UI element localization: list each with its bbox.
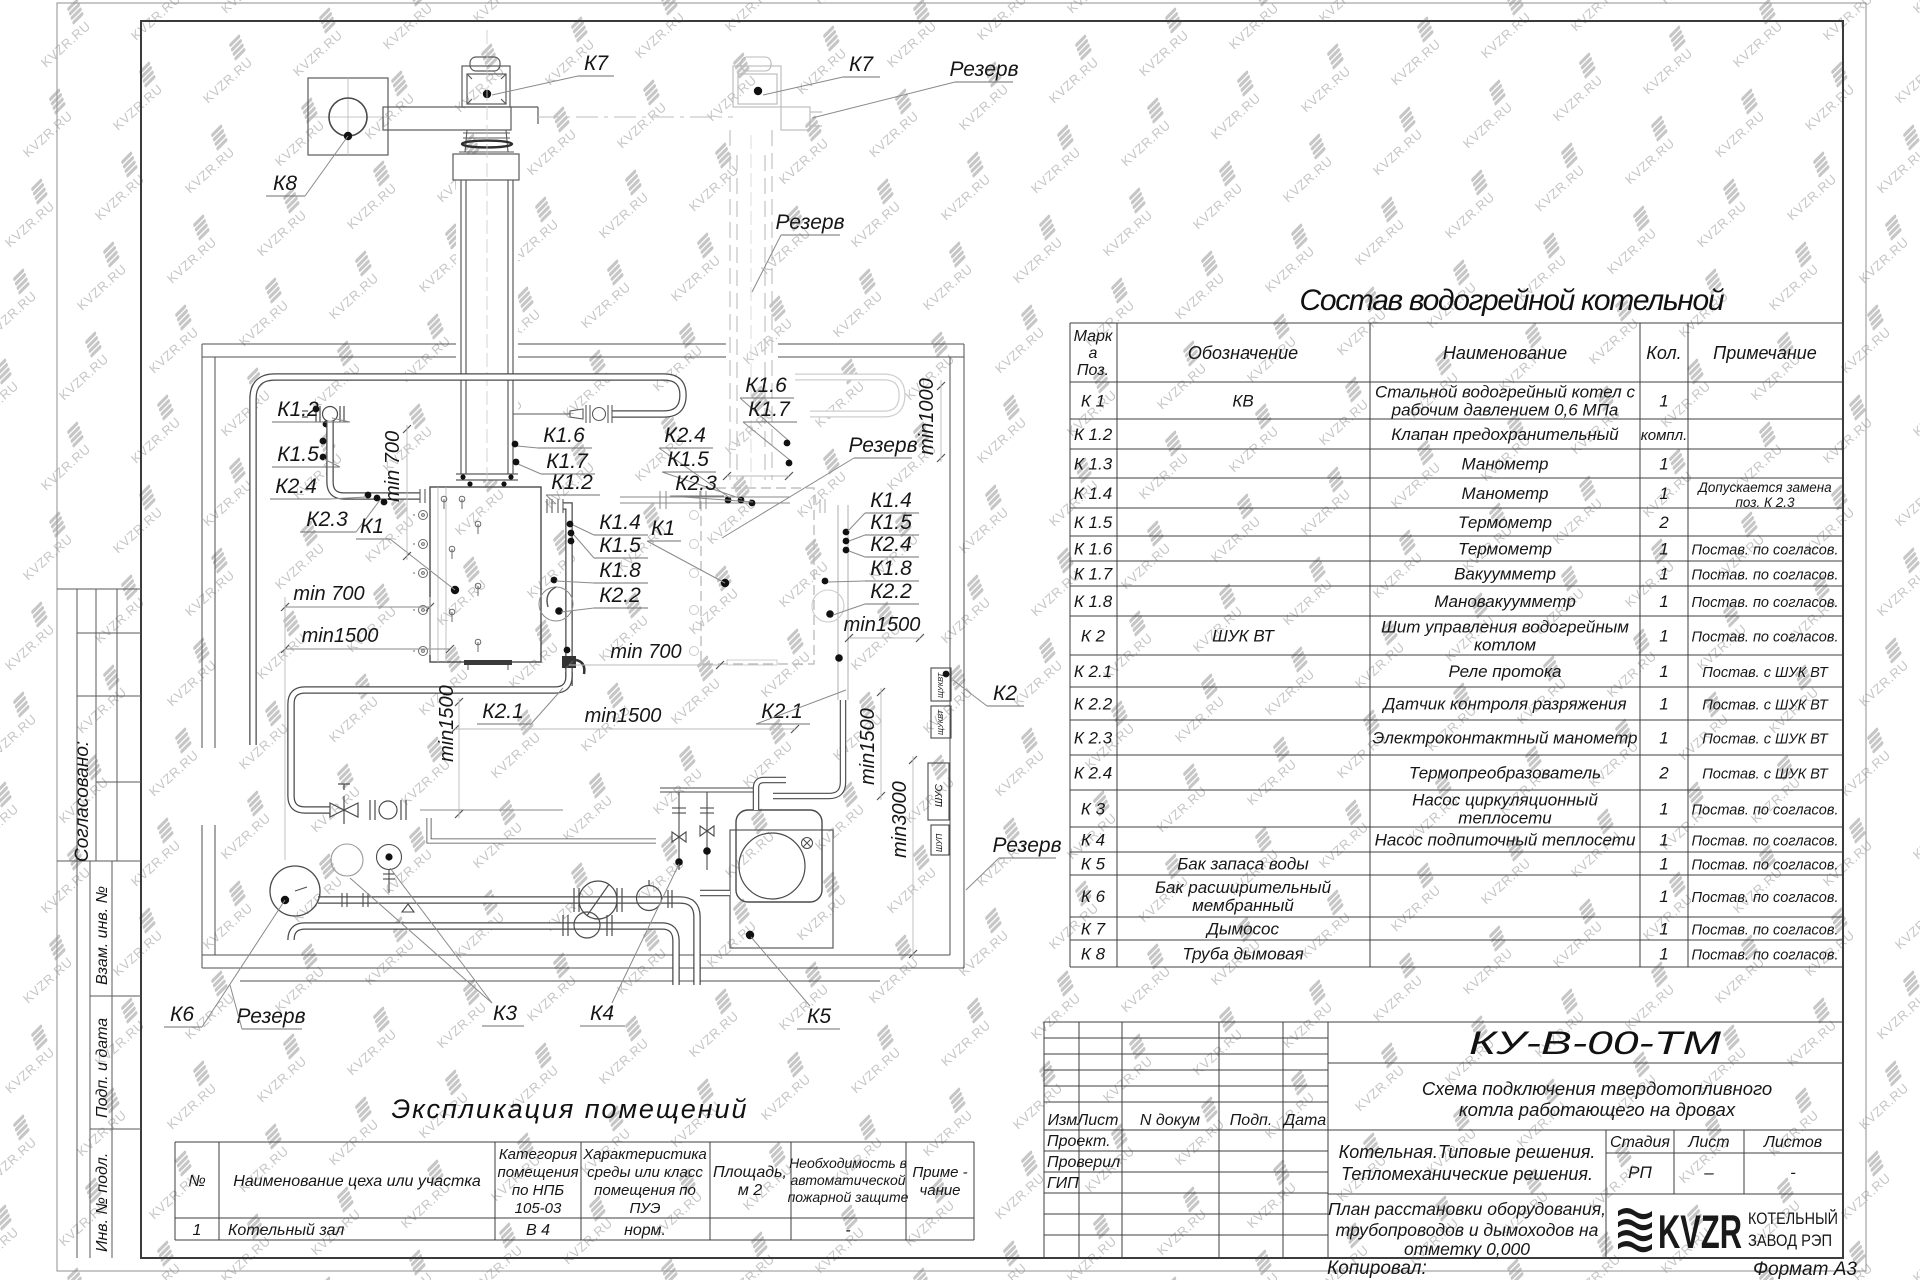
svg-text:Дата: Дата bbox=[1282, 1112, 1326, 1129]
svg-text:Резерв: Резерв bbox=[775, 211, 844, 234]
svg-text:N докум: N докум bbox=[1140, 1112, 1200, 1129]
svg-text:Постав. с ШУК ВТ: Постав. с ШУК ВТ bbox=[1702, 767, 1829, 783]
svg-text:Обозначение: Обозначение bbox=[1188, 343, 1298, 363]
svg-text:Наименование: Наименование bbox=[1443, 343, 1567, 363]
svg-text:Вакуумметр: Вакуумметр bbox=[1454, 565, 1556, 584]
svg-text:Кол.: Кол. bbox=[1646, 343, 1681, 363]
svg-text:помещения: помещения bbox=[498, 1164, 579, 1181]
svg-text:ПУЭ: ПУЭ bbox=[629, 1200, 660, 1217]
svg-text:План расстановки оборудования,: План расстановки оборудования, bbox=[1328, 1199, 1606, 1219]
svg-text:1: 1 bbox=[1659, 887, 1668, 906]
svg-text:ШУС: ШУС bbox=[934, 783, 945, 807]
svg-text:К2.3: К2.3 bbox=[306, 508, 348, 531]
svg-text:Допускается замена: Допускается замена bbox=[1696, 480, 1832, 495]
svg-text:К1.5: К1.5 bbox=[599, 534, 641, 557]
svg-text:К5: К5 bbox=[807, 1005, 831, 1028]
svg-text:ШУП: ШУП bbox=[935, 834, 944, 852]
svg-text:Приме -: Приме - bbox=[912, 1164, 967, 1181]
svg-text:теплосети: теплосети bbox=[1458, 809, 1552, 828]
svg-text:1: 1 bbox=[1659, 800, 1668, 819]
svg-text:min1500: min1500 bbox=[857, 708, 879, 785]
svg-text:К2.2: К2.2 bbox=[599, 584, 641, 607]
svg-text:ГИП: ГИП bbox=[1047, 1175, 1079, 1192]
svg-text:К 2.3: К 2.3 bbox=[1074, 729, 1113, 748]
svg-text:а: а bbox=[1089, 345, 1098, 362]
svg-text:К 2.4: К 2.4 bbox=[1074, 764, 1112, 783]
svg-text:К1.5: К1.5 bbox=[870, 511, 912, 534]
svg-text:–: – bbox=[1703, 1163, 1714, 1182]
svg-text:Бак запаса воды: Бак запаса воды bbox=[1177, 855, 1309, 874]
svg-text:К 2.1: К 2.1 bbox=[1074, 662, 1112, 681]
svg-text:Взам. инв. №: Взам. инв. № bbox=[94, 886, 111, 985]
svg-text:м 2: м 2 bbox=[738, 1182, 762, 1199]
svg-text:К1.4: К1.4 bbox=[599, 511, 641, 534]
svg-text:Постав. по согласов.: Постав. по согласов. bbox=[1692, 595, 1839, 611]
svg-text:Площадь,: Площадь, bbox=[713, 1164, 787, 1181]
svg-text:1: 1 bbox=[1659, 831, 1668, 850]
svg-text:К2.1: К2.1 bbox=[482, 700, 524, 723]
svg-text:1: 1 bbox=[1659, 455, 1668, 474]
svg-text:Термометр: Термометр bbox=[1458, 540, 1552, 559]
svg-text:помещения по: помещения по bbox=[594, 1182, 696, 1199]
svg-text:Характеристика: Характеристика bbox=[582, 1146, 707, 1163]
svg-text:1: 1 bbox=[1659, 945, 1668, 964]
svg-text:Инв. № подл.: Инв. № подл. bbox=[94, 1153, 111, 1252]
svg-text:-: - bbox=[845, 1222, 850, 1239]
svg-text:Постав. по согласов.: Постав. по согласов. bbox=[1692, 890, 1839, 906]
svg-text:К1.4: К1.4 bbox=[870, 489, 912, 512]
svg-text:Марк: Марк bbox=[1074, 328, 1114, 345]
svg-text:Котельный зал: Котельный зал bbox=[228, 1222, 344, 1239]
svg-text:К 1.8: К 1.8 bbox=[1074, 592, 1113, 611]
svg-text:Резерв: Резерв bbox=[949, 58, 1018, 81]
svg-text:ИзмЛист: ИзмЛист bbox=[1048, 1112, 1119, 1129]
svg-text:Тепломеханические решения.: Тепломеханические решения. bbox=[1341, 1164, 1593, 1184]
svg-text:Датчик контроля разряжения: Датчик контроля разряжения bbox=[1381, 695, 1626, 714]
svg-text:min1500: min1500 bbox=[844, 614, 921, 636]
svg-text:чание: чание bbox=[919, 1182, 960, 1199]
svg-text:К2.4: К2.4 bbox=[275, 475, 317, 498]
svg-text:котлом: котлом bbox=[1474, 636, 1536, 655]
svg-text:РП: РП bbox=[1628, 1163, 1652, 1182]
svg-text:К 3: К 3 bbox=[1081, 800, 1106, 819]
svg-text:КОТЕЛЬНЫЙ: КОТЕЛЬНЫЙ bbox=[1748, 1209, 1838, 1228]
svg-text:Экспликация помещений: Экспликация помещений bbox=[392, 1094, 747, 1124]
svg-text:Постав. по согласов.: Постав. по согласов. bbox=[1692, 543, 1839, 559]
svg-text:К1.5: К1.5 bbox=[277, 443, 319, 466]
svg-text:Лист: Лист bbox=[1687, 1134, 1729, 1151]
svg-text:К2.4: К2.4 bbox=[664, 424, 706, 447]
svg-text:К7: К7 bbox=[584, 52, 609, 75]
svg-text:Постав. по согласов.: Постав. по согласов. bbox=[1692, 858, 1839, 874]
svg-text:Термопреобразователь: Термопреобразователь bbox=[1409, 764, 1601, 783]
svg-text:KVZR: KVZR bbox=[1658, 1205, 1742, 1258]
svg-text:Подп. и дата: Подп. и дата bbox=[94, 1018, 111, 1118]
svg-text:Подп.: Подп. bbox=[1230, 1112, 1273, 1129]
svg-text:Согласовано:: Согласовано: bbox=[72, 741, 93, 862]
svg-text:Примечание: Примечание bbox=[1713, 343, 1817, 363]
svg-text:Состав водогрейной котельной: Состав водогрейной котельной bbox=[1300, 284, 1725, 317]
svg-text:Резерв: Резерв bbox=[848, 434, 917, 457]
svg-text:Наименование цеха или участка: Наименование цеха или участка bbox=[233, 1173, 481, 1190]
svg-text:К6: К6 bbox=[170, 1003, 194, 1026]
svg-text:К 1.5: К 1.5 bbox=[1074, 513, 1113, 532]
svg-text:ЩУКВТ: ЩУКВТ bbox=[936, 708, 945, 735]
svg-text:105-03: 105-03 bbox=[515, 1200, 562, 1217]
svg-text:К 1.4: К 1.4 bbox=[1074, 484, 1112, 503]
svg-text:Насос подпиточный теплосети: Насос подпиточный теплосети bbox=[1375, 831, 1636, 850]
svg-text:1: 1 bbox=[1659, 695, 1668, 714]
svg-text:К 4: К 4 bbox=[1081, 831, 1105, 850]
svg-text:Стадия: Стадия bbox=[1610, 1134, 1670, 1151]
svg-text:Мановакуумметр: Мановакуумметр bbox=[1434, 592, 1576, 611]
svg-text:К2: К2 bbox=[993, 682, 1017, 705]
svg-text:К1.7: К1.7 bbox=[546, 450, 589, 473]
svg-text:Электроконтактный манометр: Электроконтактный манометр bbox=[1373, 729, 1638, 748]
svg-text:К4: К4 bbox=[590, 1002, 614, 1025]
svg-text:автоматической: автоматической bbox=[790, 1172, 905, 1188]
svg-text:Листов: Листов bbox=[1763, 1134, 1822, 1151]
svg-text:К 1.7: К 1.7 bbox=[1074, 565, 1113, 584]
svg-text:Формат А3: Формат А3 bbox=[1753, 1259, 1857, 1280]
svg-text:К 2.2: К 2.2 bbox=[1074, 695, 1113, 714]
svg-text:Термометр: Термометр bbox=[1458, 513, 1552, 532]
svg-text:1: 1 bbox=[1659, 565, 1668, 584]
svg-text:среды или класс: среды или класс bbox=[587, 1164, 703, 1181]
svg-text:Постав. с ШУК ВТ: Постав. с ШУК ВТ bbox=[1702, 665, 1829, 681]
svg-text:Насос циркуляционный: Насос циркуляционный bbox=[1412, 791, 1598, 810]
svg-text:К8: К8 bbox=[273, 172, 297, 195]
svg-text:поз. К 2.3: поз. К 2.3 bbox=[1735, 495, 1795, 510]
svg-text:min 700: min 700 bbox=[610, 641, 681, 663]
svg-text:Стальной водогрейный котел с: Стальной водогрейный котел с bbox=[1375, 383, 1635, 402]
svg-text:1: 1 bbox=[1659, 592, 1668, 611]
svg-text:пожарной защите: пожарной защите bbox=[788, 1189, 909, 1205]
svg-text:Шит управления водогрейным: Шит управления водогрейным bbox=[1381, 618, 1629, 637]
svg-text:К1.7: К1.7 bbox=[748, 398, 791, 421]
svg-text:Манометр: Манометр bbox=[1462, 484, 1549, 503]
svg-text:Категория: Категория bbox=[499, 1146, 577, 1163]
svg-text:ШУК ВТ: ШУК ВТ bbox=[1212, 627, 1275, 646]
svg-text:К 1.6: К 1.6 bbox=[1074, 540, 1113, 559]
svg-text:К 7: К 7 bbox=[1081, 920, 1106, 939]
svg-text:№: № bbox=[188, 1173, 205, 1190]
svg-text:К1.8: К1.8 bbox=[599, 559, 641, 582]
svg-text:К 1.3: К 1.3 bbox=[1074, 455, 1113, 474]
svg-text:1: 1 bbox=[1659, 627, 1668, 646]
svg-text:рабочим давлением 0,6 МПа: рабочим давлением 0,6 МПа bbox=[1391, 401, 1619, 420]
svg-text:Постав. по согласов.: Постав. по согласов. bbox=[1692, 630, 1839, 646]
svg-text:min1000: min1000 bbox=[916, 378, 938, 455]
svg-text:1: 1 bbox=[1659, 484, 1668, 503]
svg-text:К1.6: К1.6 bbox=[543, 424, 585, 447]
svg-text:Реле протока: Реле протока bbox=[1449, 662, 1562, 681]
svg-text:К1.5: К1.5 bbox=[667, 448, 709, 471]
svg-text:Копировал:: Копировал: bbox=[1327, 1258, 1427, 1279]
svg-text:КВ: КВ bbox=[1232, 392, 1253, 411]
svg-text:2: 2 bbox=[1658, 513, 1669, 532]
svg-text:К2.4: К2.4 bbox=[870, 533, 912, 556]
svg-text:К1: К1 bbox=[651, 517, 675, 540]
svg-text:отметку 0,000: отметку 0,000 bbox=[1404, 1239, 1530, 1259]
svg-text:Постав. по согласов.: Постав. по согласов. bbox=[1692, 923, 1839, 939]
svg-text:min 700: min 700 bbox=[293, 583, 364, 605]
svg-text:Резерв: Резерв bbox=[992, 834, 1061, 857]
svg-text:К 1.2: К 1.2 bbox=[1074, 425, 1113, 444]
svg-text:К1.8: К1.8 bbox=[870, 557, 912, 580]
svg-text:Постав. по согласов.: Постав. по согласов. bbox=[1692, 803, 1839, 819]
svg-text:В 4: В 4 bbox=[526, 1222, 550, 1239]
svg-text:Поз.: Поз. bbox=[1077, 362, 1109, 379]
svg-text:min1500: min1500 bbox=[302, 625, 379, 647]
svg-text:1: 1 bbox=[1659, 392, 1668, 411]
svg-text:Котельная.Типовые решения.: Котельная.Типовые решения. bbox=[1339, 1142, 1596, 1162]
svg-text:трубопроводов и дымоходов на: трубопроводов и дымоходов на bbox=[1336, 1220, 1599, 1240]
svg-text:К1.2: К1.2 bbox=[277, 398, 319, 421]
svg-text:Постав. с ШУК ВТ: Постав. с ШУК ВТ bbox=[1702, 698, 1829, 714]
svg-text:Проект.: Проект. bbox=[1047, 1133, 1111, 1150]
svg-text:по НПБ: по НПБ bbox=[512, 1182, 564, 1199]
svg-text:2: 2 bbox=[1658, 764, 1669, 783]
svg-text:min1500: min1500 bbox=[436, 685, 458, 762]
svg-text:КУ-В-00-ТМ: КУ-В-00-ТМ bbox=[1469, 1025, 1721, 1061]
svg-text:1: 1 bbox=[1659, 920, 1668, 939]
svg-text:Дымосос: Дымосос bbox=[1205, 920, 1280, 939]
svg-text:мембранный: мембранный bbox=[1192, 896, 1294, 915]
svg-text:К 2: К 2 bbox=[1081, 627, 1106, 646]
svg-text:Клапан предохранительный: Клапан предохранительный bbox=[1391, 425, 1619, 444]
svg-text:min1500: min1500 bbox=[585, 705, 662, 727]
svg-text:К2.2: К2.2 bbox=[870, 580, 912, 603]
svg-text:Бак расширительный: Бак расширительный bbox=[1155, 878, 1332, 897]
svg-text:1: 1 bbox=[1659, 662, 1668, 681]
svg-text:ЗАВОД РЭП: ЗАВОД РЭП bbox=[1748, 1232, 1832, 1250]
svg-text:min 700: min 700 bbox=[382, 431, 404, 502]
svg-text:К1.2: К1.2 bbox=[551, 471, 593, 494]
svg-text:1: 1 bbox=[1659, 729, 1668, 748]
svg-text:-: - bbox=[1790, 1163, 1796, 1182]
svg-text:К 1: К 1 bbox=[1081, 392, 1105, 411]
svg-text:Постав. по согласов.: Постав. по согласов. bbox=[1692, 834, 1839, 850]
svg-text:Проверил: Проверил bbox=[1047, 1154, 1120, 1171]
svg-text:К1.6: К1.6 bbox=[745, 374, 787, 397]
svg-text:1: 1 bbox=[1659, 855, 1668, 874]
svg-text:Схема подключения твердотоплив: Схема подключения твердотопливного bbox=[1422, 1078, 1772, 1099]
svg-text:компл.: компл. bbox=[1641, 427, 1688, 444]
svg-text:min3000: min3000 bbox=[889, 781, 911, 858]
svg-text:1: 1 bbox=[193, 1222, 202, 1239]
svg-text:Манометр: Манометр bbox=[1462, 455, 1549, 474]
svg-text:Постав. по согласов.: Постав. по согласов. bbox=[1692, 948, 1839, 964]
svg-text:К2.3: К2.3 bbox=[675, 472, 717, 495]
svg-text:К 6: К 6 bbox=[1081, 887, 1106, 906]
svg-text:норм.: норм. bbox=[624, 1222, 666, 1239]
svg-text:К 5: К 5 bbox=[1081, 855, 1106, 874]
svg-text:1: 1 bbox=[1659, 540, 1668, 559]
svg-text:К7: К7 bbox=[849, 53, 874, 76]
svg-text:К3: К3 bbox=[493, 1002, 517, 1025]
svg-text:К 8: К 8 bbox=[1081, 945, 1106, 964]
svg-text:Необходимость в: Необходимость в bbox=[789, 1155, 907, 1171]
svg-text:Постав. с ШУК ВТ: Постав. с ШУК ВТ bbox=[1702, 732, 1829, 748]
svg-text:котла работающего на дровах: котла работающего на дровах bbox=[1459, 1099, 1736, 1120]
svg-text:Постав. по согласов.: Постав. по согласов. bbox=[1692, 568, 1839, 584]
svg-text:Резерв: Резерв bbox=[236, 1005, 305, 1028]
svg-text:К1: К1 bbox=[360, 515, 384, 538]
svg-text:Труба дымовая: Труба дымовая bbox=[1182, 945, 1303, 964]
